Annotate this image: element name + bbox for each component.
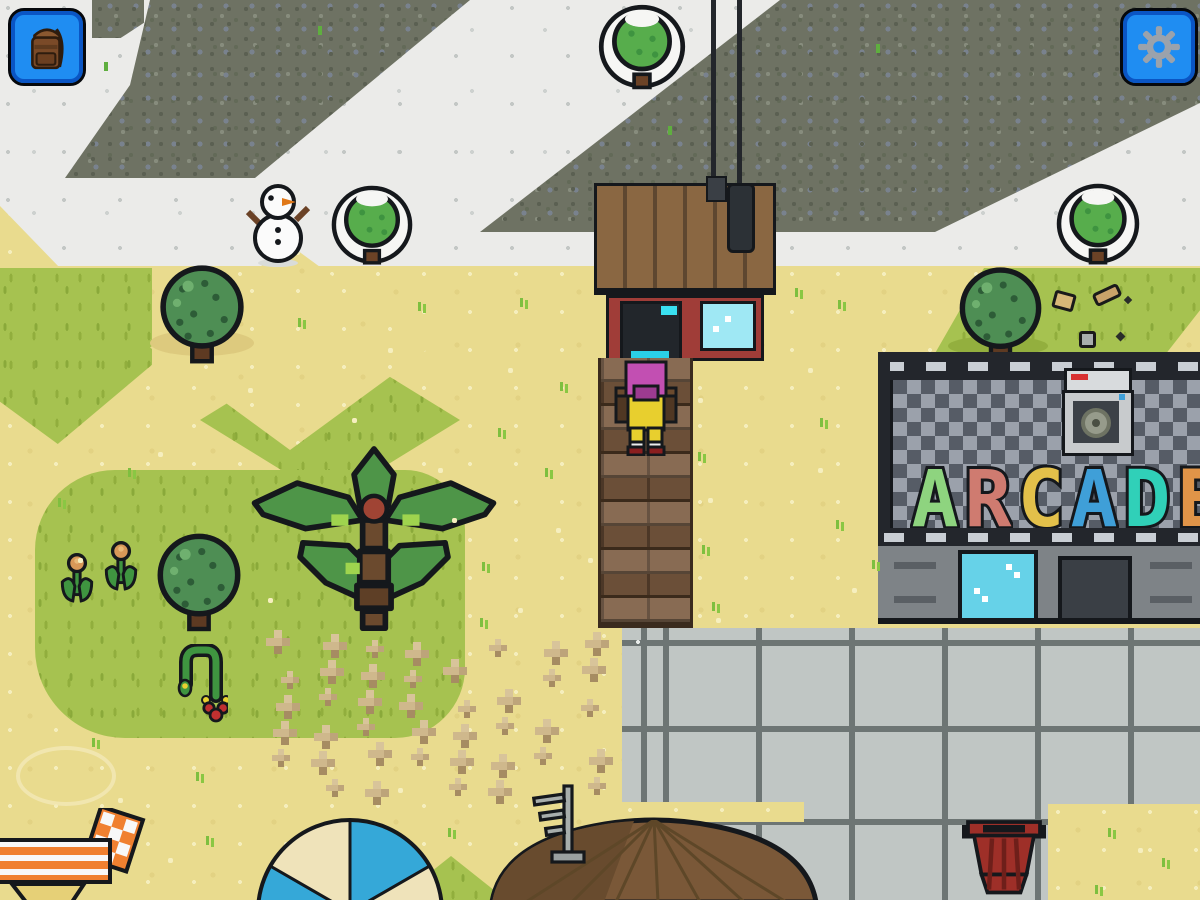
sand-speckle	[118, 798, 123, 803]
pebble	[376, 750, 384, 758]
sand-speckle	[248, 388, 253, 393]
arcade-sign-letter: C	[1016, 450, 1066, 536]
pebble	[281, 729, 289, 737]
snow-tree	[597, 2, 687, 94]
pebble	[322, 733, 330, 741]
pebble	[502, 723, 508, 729]
snowman	[242, 182, 314, 268]
sand-speckle	[698, 398, 703, 403]
sand-speckle	[508, 368, 513, 373]
cabin-window	[700, 301, 756, 351]
grass-tuft	[520, 298, 523, 307]
grass-tuft	[838, 300, 841, 309]
moss-speck	[668, 126, 672, 135]
arcade-building: ARCADE	[878, 352, 1200, 642]
window-sparkle	[725, 316, 731, 322]
backpack-icon	[27, 23, 67, 71]
grass-tuft	[418, 302, 421, 311]
grass-tuft	[820, 418, 823, 427]
sprout-plant	[100, 538, 142, 602]
pebble	[420, 728, 428, 736]
moss-speck	[104, 62, 108, 71]
game-viewport: ARCADE	[0, 0, 1200, 900]
window-sparkle	[713, 326, 719, 332]
pebble	[372, 646, 378, 652]
sand-speckle	[852, 588, 857, 593]
arcade-sign-letter: D	[1122, 450, 1172, 536]
grass-tuft	[702, 545, 705, 554]
pebble	[410, 676, 416, 682]
sand-speckle	[398, 788, 403, 793]
grass-tuft	[795, 288, 798, 297]
sand-speckle	[452, 518, 457, 523]
cable-pole	[706, 176, 727, 202]
pebble	[451, 667, 459, 675]
grass-tuft	[128, 468, 131, 477]
window-sparkle	[1014, 572, 1020, 578]
grass-tuft	[196, 772, 199, 781]
pebble	[373, 789, 381, 797]
vent-light	[1071, 374, 1088, 380]
pebble	[284, 703, 292, 711]
sand-speckle	[168, 858, 173, 863]
arcade-sign-letter-glyph: E	[1177, 455, 1200, 536]
pebble	[593, 640, 601, 648]
pebble	[278, 755, 284, 761]
arcade-sign-letter-glyph: C	[1018, 455, 1065, 536]
sand-speckle	[438, 468, 443, 473]
cable-line	[737, 0, 742, 192]
arcade-sign: ARCADE	[910, 448, 1200, 536]
grass-tuft	[498, 428, 501, 437]
pebble	[325, 694, 331, 700]
vent-unit	[1062, 368, 1134, 454]
window-sparkle	[982, 596, 988, 602]
door-glass	[661, 306, 677, 315]
pebble	[505, 697, 513, 705]
antenna	[524, 782, 596, 866]
pebble	[413, 650, 421, 658]
sand-speckle	[708, 498, 713, 503]
pebble	[287, 677, 293, 683]
gear-icon	[1136, 24, 1182, 70]
sand-speckle	[388, 348, 393, 353]
cable-line	[711, 0, 716, 192]
lounge-chair	[0, 808, 158, 900]
sprout-plant	[56, 550, 98, 614]
pebble	[274, 638, 282, 646]
sand-speckle	[808, 368, 813, 373]
trash-can	[962, 814, 1046, 896]
grass-tuft	[1095, 885, 1098, 894]
sand-corner	[1048, 804, 1200, 900]
player-character[interactable]	[610, 360, 682, 456]
inventory-button[interactable]	[8, 8, 86, 86]
door-threshold	[631, 351, 669, 358]
arcade-sign-letter: A	[1069, 450, 1119, 536]
arcade-window	[958, 550, 1038, 622]
rock-pebble	[1079, 331, 1096, 348]
grass-tuft	[1108, 828, 1111, 837]
grass-tuft	[545, 468, 548, 477]
window-sparkle	[974, 588, 980, 594]
pebble	[366, 698, 374, 706]
tree	[152, 532, 246, 632]
cabin-door[interactable]	[620, 301, 682, 364]
grass-tuft	[712, 602, 715, 611]
bent-flower-plant	[176, 644, 228, 724]
sand-speckle	[518, 608, 523, 613]
arcade-sign-letter-glyph: A	[1071, 455, 1118, 536]
grass-tuft	[872, 560, 875, 569]
cabin	[594, 183, 776, 363]
sand-speckle	[1138, 848, 1143, 853]
vent-blue-dot	[1119, 394, 1125, 400]
moss-speck	[876, 44, 880, 53]
arcade-sign-letter: E	[1175, 450, 1200, 536]
sand-speckle	[818, 468, 823, 473]
pebble	[587, 705, 593, 711]
pebble	[590, 666, 598, 674]
pebble	[319, 759, 327, 767]
pebble	[499, 762, 507, 770]
grass-tuft	[480, 618, 483, 627]
pebble	[549, 675, 555, 681]
pebble	[363, 724, 369, 730]
sand-speckle	[158, 452, 163, 457]
grass-tuft	[58, 498, 61, 507]
arcade-sign-letter-glyph: R	[965, 455, 1012, 536]
palm-tree	[246, 446, 502, 634]
pebble	[458, 758, 466, 766]
pebble	[455, 784, 461, 790]
sand-speckle	[268, 598, 273, 603]
pebble	[543, 727, 551, 735]
grass-tuft	[482, 562, 485, 571]
grass-tuft	[560, 382, 563, 391]
sand-speckle	[78, 558, 83, 563]
sand-speckle	[588, 558, 593, 563]
pebble	[496, 788, 504, 796]
sand-speckle	[352, 418, 357, 423]
sand-speckle	[716, 618, 721, 623]
tree	[952, 266, 1049, 364]
pebble	[369, 672, 377, 680]
grass-tuft	[698, 452, 701, 461]
settings-button[interactable]	[1120, 8, 1198, 86]
arcade-sign-letter-glyph: D	[1124, 455, 1171, 536]
cable-pole	[727, 183, 755, 253]
sand-mound	[16, 746, 116, 806]
pebble	[328, 668, 336, 676]
arcade-door[interactable]	[1058, 556, 1132, 624]
arcade-lower-wall	[878, 546, 1200, 620]
sand-speckle	[556, 528, 561, 533]
grass-tuft	[836, 520, 839, 529]
wall-dash	[1150, 596, 1192, 603]
pebble	[552, 649, 560, 657]
beach-umbrella	[250, 816, 450, 900]
snow-tree	[330, 183, 414, 269]
pebble	[495, 645, 501, 651]
snow-tree	[1054, 181, 1142, 269]
pebble	[597, 757, 605, 765]
wall-dash	[894, 596, 936, 603]
pebble	[540, 753, 546, 759]
grass-tuft	[298, 318, 301, 327]
pebble	[464, 706, 470, 712]
wall-dash	[894, 562, 936, 569]
pebble-field	[268, 634, 608, 806]
vent-fan-hub	[1092, 419, 1100, 427]
arcade-sign-letter: A	[910, 450, 960, 536]
arcade-sign-letter-glyph: A	[912, 455, 959, 536]
arcade-roof-band	[878, 352, 1200, 380]
pebble	[461, 732, 469, 740]
pebble	[331, 642, 339, 650]
moss-speck	[318, 26, 322, 35]
arcade-sign-letter: R	[963, 450, 1013, 536]
grass-tuft	[1162, 858, 1165, 867]
wall-dash	[1150, 562, 1192, 569]
grass-tuft	[206, 836, 209, 845]
grass-tuft	[448, 828, 451, 837]
grass-tuft	[92, 738, 95, 747]
pebble	[332, 785, 338, 791]
pebble	[407, 702, 415, 710]
tree	[154, 264, 250, 364]
window-sparkle	[1006, 564, 1012, 570]
pebble	[417, 754, 423, 760]
arcade-divider-band	[878, 528, 1200, 546]
